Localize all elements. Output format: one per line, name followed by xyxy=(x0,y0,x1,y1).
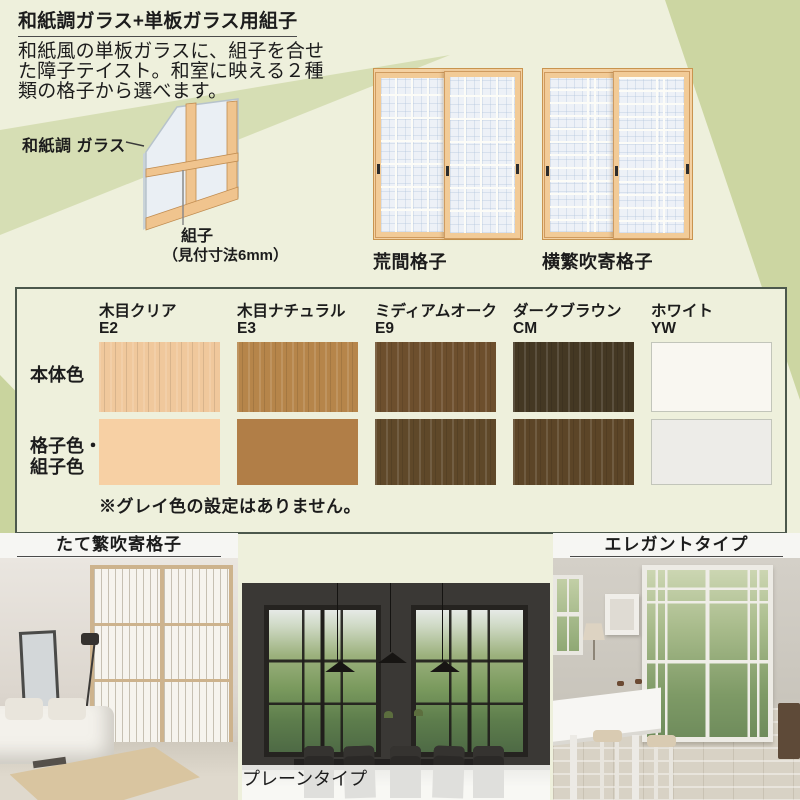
shoji-panel xyxy=(376,73,451,237)
column-header: ダークブラウンCM xyxy=(513,303,643,337)
lattice-name-yokoshige: 横繁吹寄格子 xyxy=(542,248,653,274)
stool xyxy=(647,735,677,747)
horizontal-lattice xyxy=(550,78,615,232)
cup xyxy=(635,679,642,684)
page-title: 和紙調ガラス+単板ガラス用組子 xyxy=(18,6,297,37)
table-plant xyxy=(384,711,393,718)
stool-leg xyxy=(615,742,619,800)
column-header: ミディアムオークE9 xyxy=(375,303,505,337)
pendant-cord xyxy=(390,583,391,652)
catalog-page: 和紙調ガラス+単板ガラス用組子 和紙風の単板ガラスに、組子を合せ た障子テイスト… xyxy=(0,0,800,800)
row-header-body-color: 本体色 xyxy=(30,365,84,386)
lattice-sample-yokoshige xyxy=(542,68,693,240)
stool-leg xyxy=(600,742,604,800)
stool-leg xyxy=(669,747,673,800)
row-header-grid-color: 格子色・ 組子色 xyxy=(30,436,102,478)
photo-label-plain: プレーンタイプ xyxy=(242,765,550,800)
cup xyxy=(617,681,624,686)
swatch-grid-CM xyxy=(513,419,634,485)
lamp-stem xyxy=(593,640,595,659)
lattice-name-araima: 荒間格子 xyxy=(373,248,447,274)
window-garden-view xyxy=(264,605,381,757)
cabinet xyxy=(778,703,800,759)
picture-frame xyxy=(605,594,640,635)
swatch-body-CM xyxy=(513,342,634,412)
table-note: ※グレイ色の設定はありません。 xyxy=(99,492,361,517)
swatch-body-E2 xyxy=(99,342,220,412)
swatch-body-E9 xyxy=(375,342,496,412)
kumiko-callout-label: 組子 （見付寸法6mm） xyxy=(163,227,288,265)
swatch-grid-YW xyxy=(651,419,772,485)
table-plant xyxy=(414,709,423,716)
swatch-grid-E3 xyxy=(237,419,358,485)
column-header: 木目クリアE2 xyxy=(99,303,229,337)
intro-section: 和紙調ガラス+単板ガラス用組子 和紙風の単板ガラスに、組子を合せ た障子テイスト… xyxy=(18,6,354,102)
pendant-cord xyxy=(442,583,443,661)
cushion xyxy=(5,698,43,720)
column-header: 木目ナチュラルE3 xyxy=(237,303,367,337)
column-header: ホワイトYW xyxy=(651,303,781,337)
table-leg xyxy=(632,735,639,800)
door-stile xyxy=(160,569,164,743)
elegant-grid xyxy=(647,570,768,737)
horizontal-lattice xyxy=(619,77,684,233)
square-lattice xyxy=(381,78,446,232)
photo-plain-type: プレーンタイプ xyxy=(242,583,550,800)
swatch-grid-E9 xyxy=(375,419,496,485)
table-leg xyxy=(570,735,577,800)
window-garden-view xyxy=(411,605,528,757)
french-doors xyxy=(642,565,773,742)
swatch-grid-E2 xyxy=(99,419,220,485)
cushion xyxy=(48,698,86,720)
wall-lamp xyxy=(583,623,605,640)
label-underline xyxy=(570,556,782,557)
color-option-table: 木目クリアE2 木目ナチュラルE3 ミディアムオークE9 ダークブラウンCM ホ… xyxy=(15,287,787,534)
door-handle xyxy=(516,164,519,174)
swatch-body-E3 xyxy=(237,342,358,412)
photo-label-elegant: エレガントタイプ xyxy=(553,533,800,558)
window-grid xyxy=(269,610,376,752)
door-handle xyxy=(615,166,618,176)
stool xyxy=(593,730,623,742)
photo-tateshige-lattice xyxy=(0,558,238,800)
door-handle xyxy=(546,166,549,176)
shoji-panel xyxy=(445,72,520,238)
lamp-shade xyxy=(81,633,99,645)
label-underline xyxy=(17,556,222,557)
door-handle xyxy=(377,164,380,174)
door-handle xyxy=(686,164,689,174)
side-window xyxy=(553,575,583,655)
square-lattice xyxy=(450,77,515,233)
photo-elegant-type xyxy=(553,558,800,800)
glass-callout-label: 和紙調 ガラス xyxy=(22,132,126,156)
window-grid xyxy=(557,579,579,651)
swatch-body-YW xyxy=(651,342,772,412)
shoji-panel xyxy=(614,72,689,238)
lattice-sample-araima xyxy=(373,68,523,240)
door-handle xyxy=(446,166,449,176)
pendant-cord xyxy=(337,583,338,661)
stool-leg xyxy=(654,747,658,800)
window-grid xyxy=(416,610,523,752)
photo-label-tateshige: たて繁吹寄格子 xyxy=(0,533,238,558)
shoji-panel xyxy=(545,73,620,237)
